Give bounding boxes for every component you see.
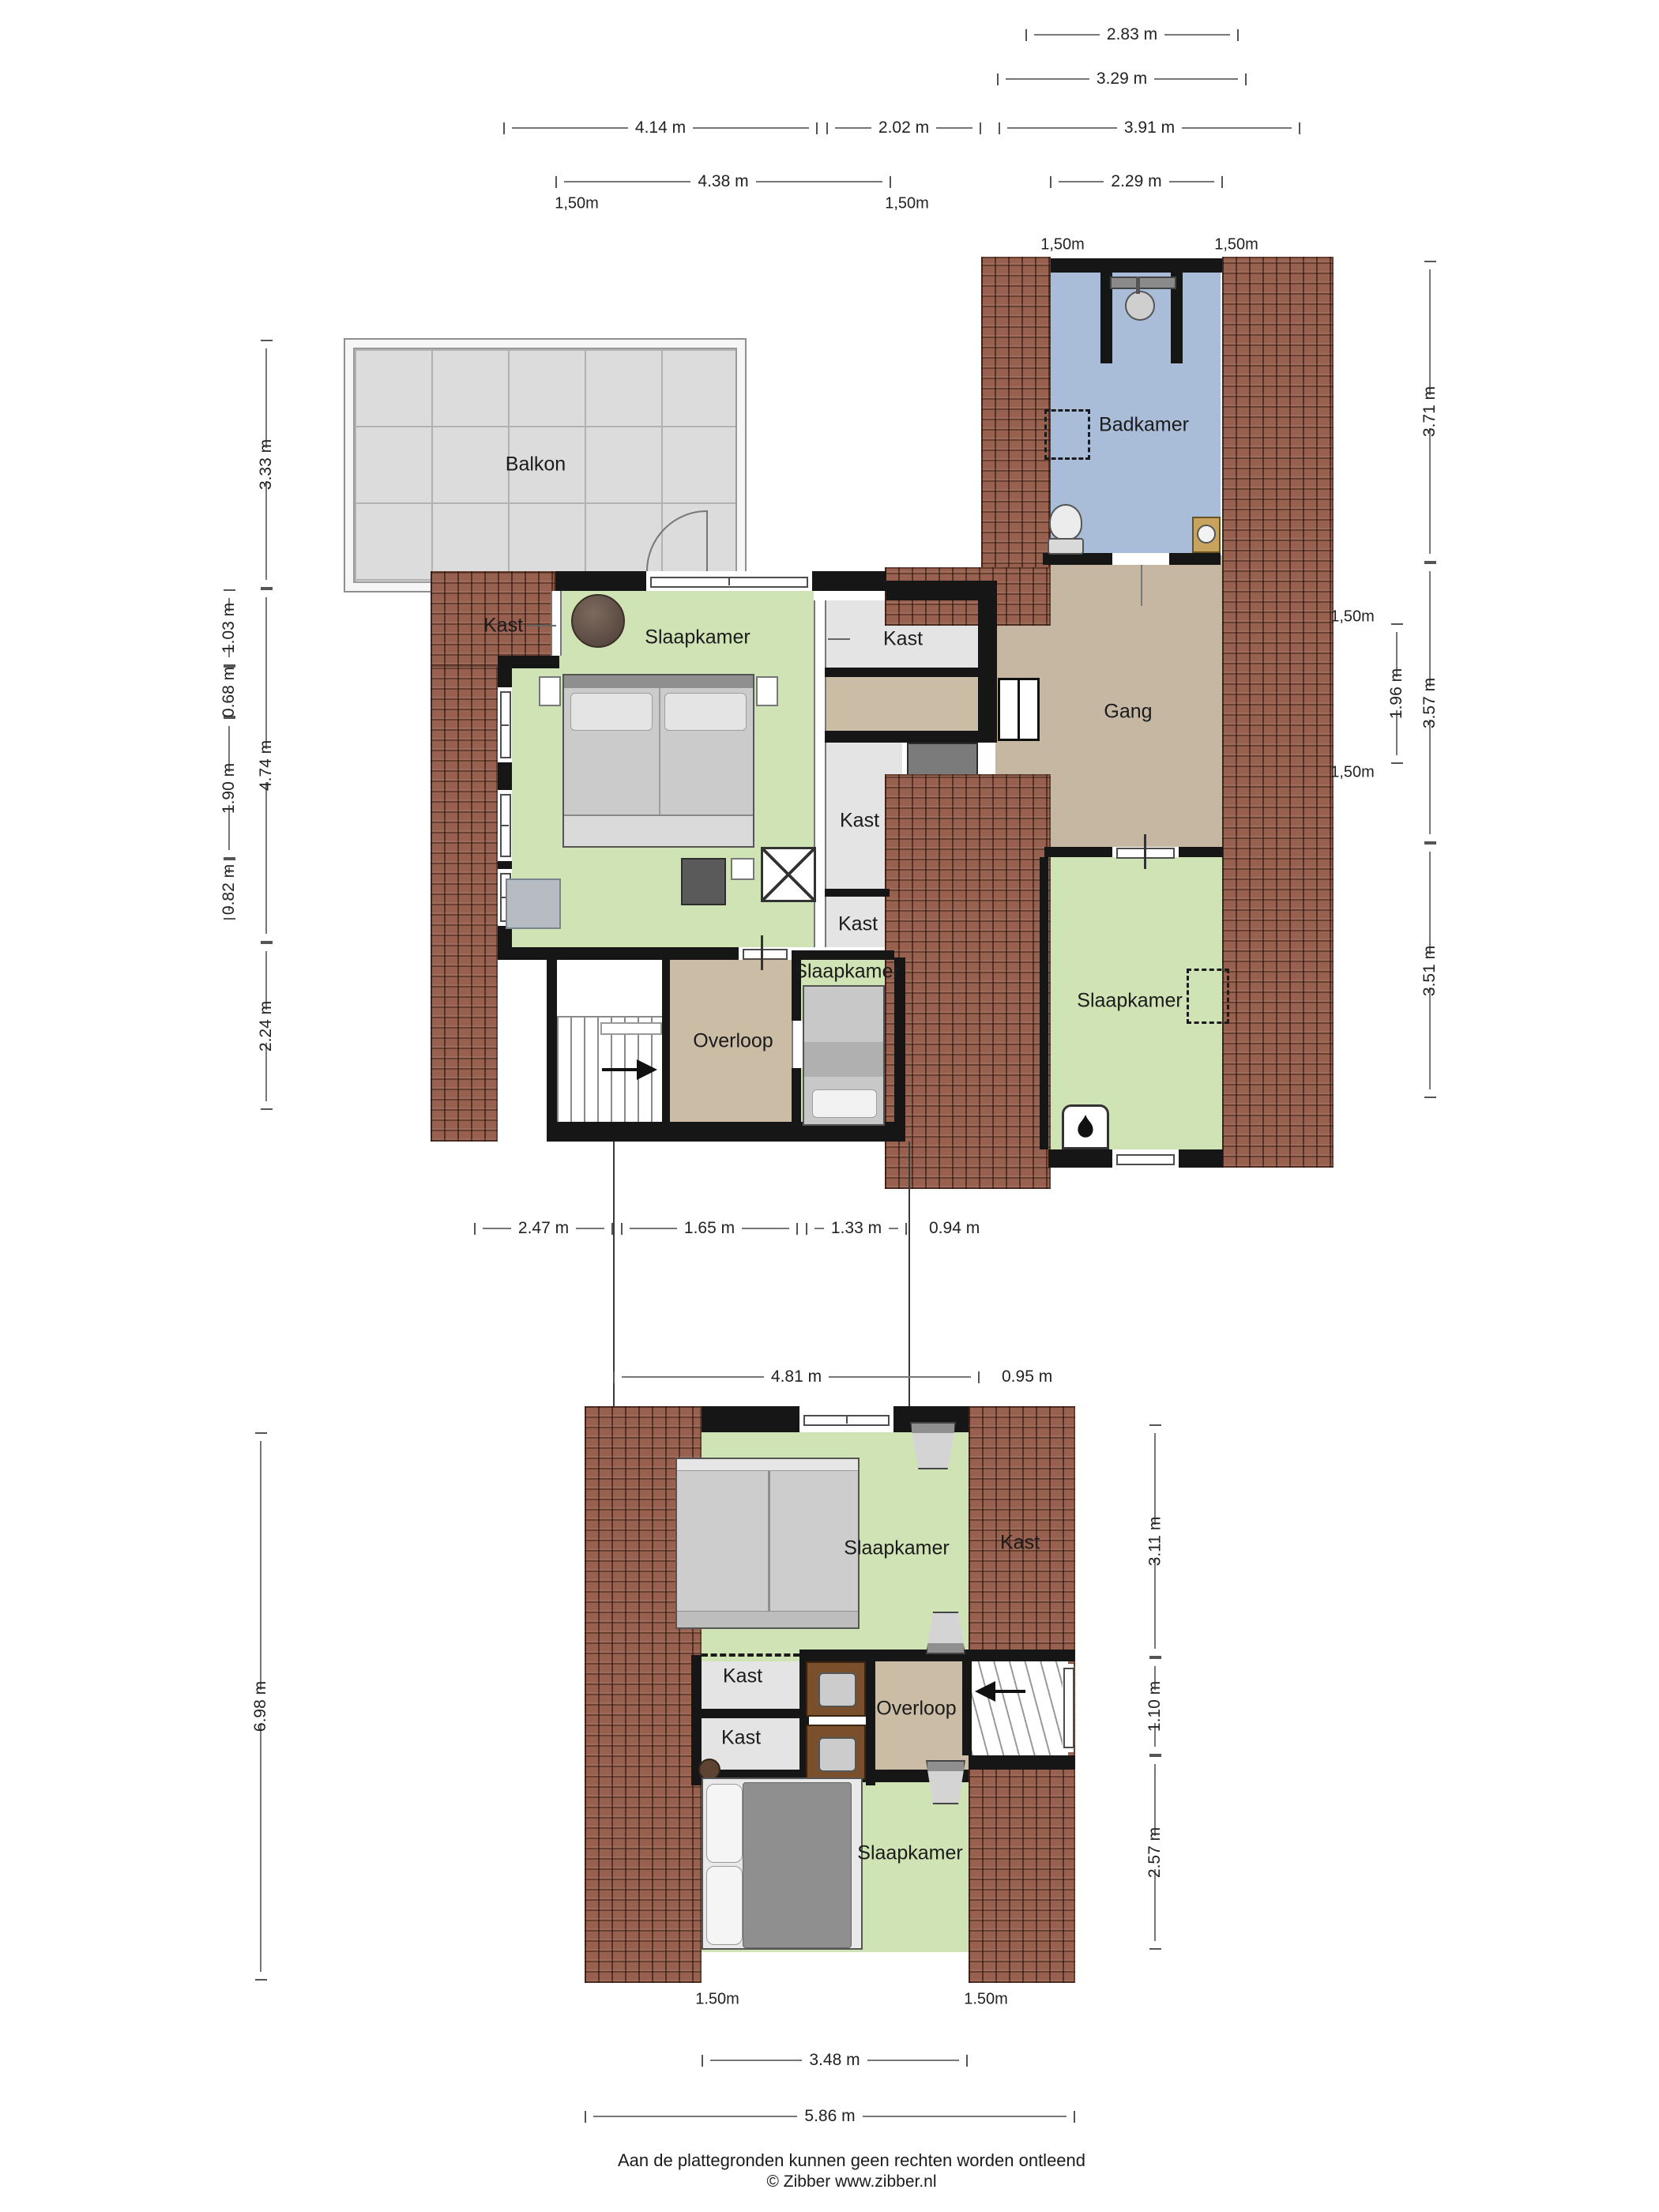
nightstand [756,676,778,706]
shower-icon [1125,291,1155,321]
basin [818,1672,856,1707]
open-closet-line [702,1653,799,1657]
bed-pillow [812,1089,877,1118]
room-label-slaapkamer-onder: Slaapkamer [857,1842,962,1865]
toilet-icon [1049,504,1082,540]
dim-top-1: 2.83 m [1025,24,1239,46]
dim-left-inner-1: 1.03 m [218,589,240,666]
label-leader [828,638,850,640]
dim-second-right-3: 2.57 m [1144,1755,1166,1950]
floorplan-page: Balkon [0,0,1659,2212]
window [498,790,512,861]
room-label-kast-a: Kast [883,628,923,651]
window [799,1406,893,1432]
stairs-landing-line [557,1016,662,1018]
shower-bar [1110,276,1176,289]
clearance-label: 1,50m [1214,236,1258,254]
dim-bottom-2: 5.86 m [585,2105,1075,2127]
room-label-slaapkamer-rechts: Slaapkamer [1077,990,1182,1013]
shower-tray [1044,409,1090,460]
stairs-treads [972,1661,1063,1755]
sink-basin [1197,525,1216,544]
stairs-direction-stem [602,1068,637,1071]
room-label-kast-c: Kast [838,913,878,936]
dim-mid2-1: 4.81 m [613,1366,980,1388]
label-leader [528,625,556,626]
dim-row4-2: 2.29 m [1050,171,1223,193]
dim-right-outer-3: 3.51 m [1419,843,1441,1098]
dim-mid1-4: 0.94 m [915,1217,986,1240]
roof-right-column [1222,257,1334,1168]
clearance-label: 1,50m [555,195,599,213]
door-glass [1063,1664,1074,1752]
bed-double-top [675,1458,860,1629]
window [498,687,512,762]
dim-row3-2: 2.02 m [826,117,981,139]
room-label-slaapkamer-main: Slaapkamer [645,626,750,649]
dim-left-outer-2: 4.74 m [255,589,277,942]
bed-foot [677,1611,858,1627]
round-table [571,594,625,648]
dim-second-right-1: 3.11 m [1144,1424,1166,1657]
door-leaf [1141,565,1142,606]
dim-mid1-2: 1.65 m [621,1217,798,1240]
window [646,571,812,591]
bed-split [768,1459,770,1627]
stove [1062,1104,1109,1149]
bed-duvet [743,1782,852,1948]
window-tick [761,935,763,970]
clearance-label: 1,50m [1330,764,1375,782]
room-label-kast-b: Kast [840,810,879,833]
window [739,947,792,960]
closet-front [551,591,562,656]
toilet-tank [1048,538,1084,555]
footer-copyright: © Zibber www.zibber.nl [457,2172,1247,2191]
stairs-step-edge [600,1022,662,1035]
door-leaf [706,510,708,572]
window [1112,1149,1179,1168]
room-label-kast-d: Kast [723,1665,762,1688]
stairs-direction-stem [994,1690,1025,1693]
wall [702,1709,799,1718]
dim-left-inner-4: 0.82 m [218,859,240,920]
cabinet-basin [806,1725,866,1780]
wall [886,581,997,600]
wall [547,960,557,1122]
wall [825,668,978,677]
dim-left-inner-3: 1.90 m [218,717,240,859]
side-table [731,858,754,880]
dim-row4-1: 4.38 m [555,171,891,193]
cabinet-basin [806,1661,866,1717]
wall [498,947,739,960]
dim-left-outer-3: 2.24 m [255,942,277,1110]
wall [498,656,559,668]
room-label-kast-e: Kast [721,1727,761,1750]
dim-second-left: 6.98 m [250,1432,272,1981]
bed-pillow [706,1866,743,1945]
chest [681,858,726,905]
room-label-slaapkamer-klein: Slaapkamer [794,961,899,984]
wall [662,960,670,1138]
dim-row3-1: 4.14 m [503,117,818,139]
bed-double-bottom [702,1777,863,1950]
dim-right-inner: 1.96 m [1386,623,1408,764]
stairs-direction-arrow [637,1059,657,1080]
desk [506,878,561,929]
door-arc [646,510,708,572]
bed-headboard [564,675,753,688]
wall [825,731,997,743]
clearance-label: 1,50m [1040,236,1085,254]
roof-left-column [431,665,498,1142]
room-label-gang: Gang [1104,701,1152,724]
bed-pillow [570,693,653,731]
wall [894,957,905,1138]
basin [818,1737,856,1772]
wall [555,571,646,591]
wall [978,600,997,739]
wall [702,1406,799,1432]
room-label-kast-rechts: Kast [1000,1532,1040,1555]
bed-double [562,674,754,848]
room-label-kast-links: Kast [483,615,523,638]
skylight-x [761,847,816,902]
dim-mid2-2: 0.95 m [987,1366,1060,1388]
wall [866,1655,875,1785]
clearance-label: 1,50m [885,195,929,213]
bed-sheet [677,1459,858,1471]
bed-pillow [664,693,747,731]
wall [962,1661,972,1755]
bed-single [803,985,885,1126]
corridor-strip [825,677,999,731]
clearance-label: 1,50m [1330,608,1375,626]
room-label-overloop-2: Overloop [876,1698,956,1721]
shower-hose [1136,276,1140,294]
dormer-outline [1187,969,1229,1024]
wall [1040,857,1048,1149]
dim-top-2: 3.29 m [997,68,1247,90]
dim-row3-3: 3.91 m [999,117,1300,139]
wall [825,889,890,897]
clearance-label: 1.50m [695,1991,739,2009]
wall [1051,258,1222,273]
room-label-overloop-1: Overloop [693,1030,773,1053]
dim-left-outer-1: 3.33 m [255,340,277,589]
stairs-direction-arrow [975,1681,995,1702]
footer-disclaimer: Aan de plattegronden kunnen geen rechten… [457,2150,1247,2171]
wall [969,1755,1075,1770]
dim-right-outer-1: 3.71 m [1419,261,1441,562]
wall [812,571,886,591]
room-label-badkamer: Badkamer [1099,414,1189,437]
bed-pillow [706,1784,743,1863]
dim-left-inner-2: 0.68 m [218,666,240,717]
nightstand [539,676,561,706]
dim-right-outer-2: 3.57 m [1419,562,1441,843]
dim-mid1-1: 2.47 m [474,1217,613,1240]
fire-icon [1075,1115,1096,1140]
wall [792,950,894,960]
bed-band [804,1042,883,1077]
double-door-divider [1018,680,1020,739]
door-opening [1112,553,1169,565]
room-label-slaapkamer-boven: Slaapkamer [844,1537,949,1560]
window-tick [1144,834,1146,869]
clearance-label: 1.50m [964,1991,1008,2009]
bed-split [659,688,660,814]
roof-middle-strip [885,774,1051,1189]
dim-second-right-2: 1.10 m [1144,1657,1166,1755]
dim-mid1-3: 1.33 m [806,1217,907,1240]
room-label-balkon: Balkon [506,453,566,476]
bed-foot [564,814,753,846]
dim-bottom-1: 3.48 m [702,2049,968,2071]
